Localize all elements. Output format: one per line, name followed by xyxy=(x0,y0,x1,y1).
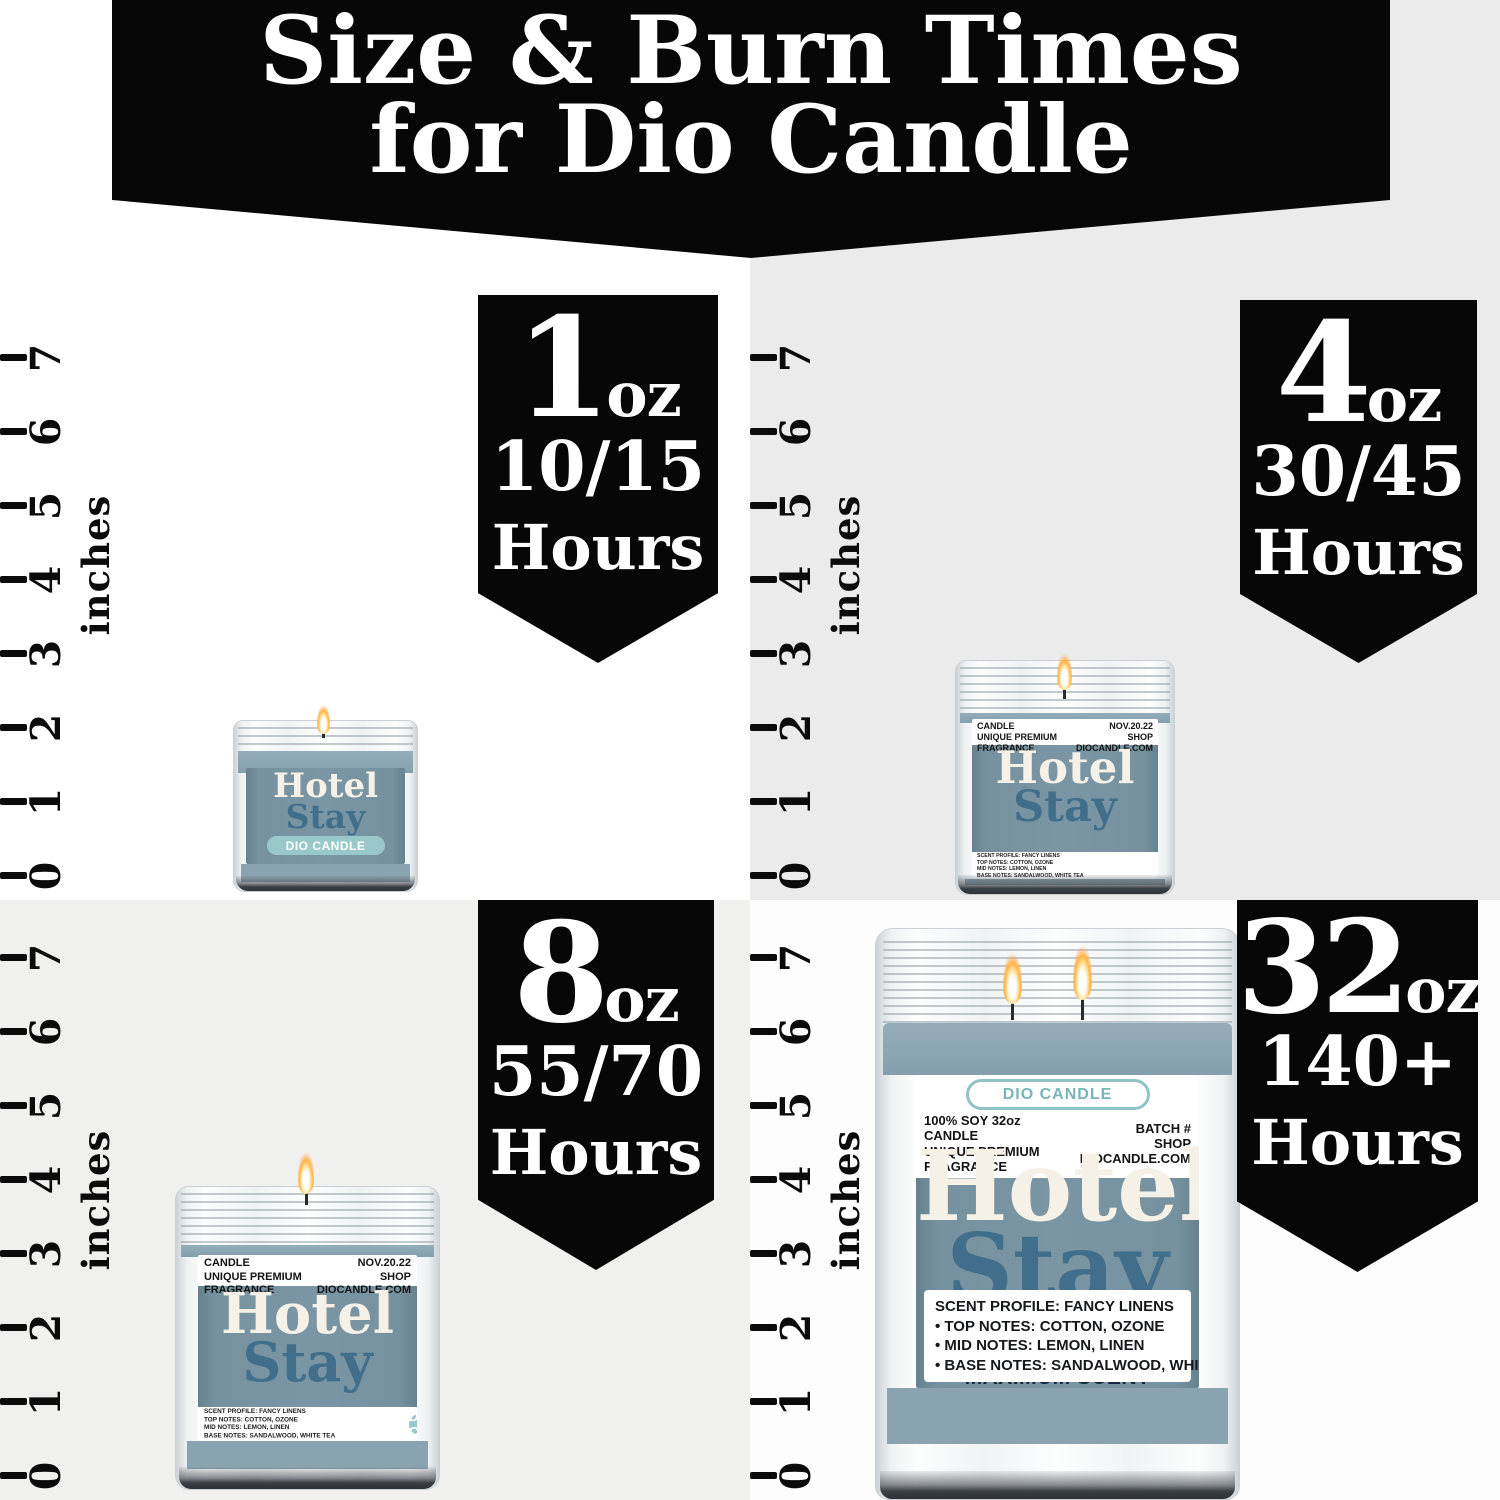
tick-number: 6 xyxy=(26,410,66,454)
ruler-tick-0: 0 xyxy=(0,856,92,896)
scent-notes-box: SCENT PROFILE: FANCY LINENS • TOP NOTES:… xyxy=(924,1290,1191,1382)
badge-size-unit: oz xyxy=(606,358,681,431)
tick-number: 4 xyxy=(26,1158,66,1202)
ruler-tick-4: 4 xyxy=(750,1160,842,1200)
ruler-tick-6: 6 xyxy=(0,412,92,452)
tick-number: 6 xyxy=(776,410,816,454)
ruler-8oz: inches 01234567 xyxy=(0,930,130,1500)
candle-4oz: 100% SOY 4oz CANDLE UNIQUE PREMIUM FRAGR… xyxy=(955,650,1175,895)
candle-label: 100% SOY 8oz CANDLE UNIQUE PREMIUM FRAGR… xyxy=(198,1255,417,1441)
badge-size: 1oz xyxy=(478,299,718,437)
ruler-tick-3: 3 xyxy=(750,634,842,674)
ruler-tick-2: 2 xyxy=(0,708,92,748)
tick-number: 4 xyxy=(776,1158,816,1202)
candle-32oz: DIO CANDLE 100% SOY 32oz CANDLE UNIQUE P… xyxy=(875,928,1240,1500)
brand-pill: DIO CANDLE xyxy=(966,1079,1150,1110)
badge-hours-label: Hours xyxy=(478,517,718,579)
jar-glass: Hotel Stay DIO CANDLE xyxy=(233,720,418,892)
label-name: Hotel Stay xyxy=(198,1288,417,1387)
badge-1oz: 1oz 10/15 Hours xyxy=(478,295,718,663)
ruler-tick-0: 0 xyxy=(750,856,842,896)
tick-number: 1 xyxy=(776,780,816,824)
badge-size-number: 32 xyxy=(1237,893,1405,1043)
badge-size-unit: oz xyxy=(604,963,679,1036)
ruler-tick-0: 0 xyxy=(750,1456,842,1496)
ruler-tick-5: 5 xyxy=(750,1086,842,1126)
tick-number: 7 xyxy=(776,336,816,380)
candle-8oz: 100% SOY 8oz CANDLE UNIQUE PREMIUM FRAGR… xyxy=(175,1148,440,1490)
candle-label: 100% SOY 4oz CANDLE UNIQUE PREMIUM FRAGR… xyxy=(972,719,1158,879)
ruler-tick-6: 6 xyxy=(750,412,842,452)
ruler-tick-6: 6 xyxy=(750,1012,842,1052)
tick-number: 7 xyxy=(26,336,66,380)
tick-number: 5 xyxy=(26,1084,66,1128)
ruler-tick-4: 4 xyxy=(750,560,842,600)
ruler-tick-4: 4 xyxy=(0,560,92,600)
tick-number: 4 xyxy=(26,558,66,602)
label-name-line2: Stay xyxy=(246,802,405,833)
ruler-tick-7: 7 xyxy=(750,338,842,378)
ruler-tick-5: 5 xyxy=(0,486,92,526)
badge-size-number: 4 xyxy=(1276,291,1367,454)
tick-number: 0 xyxy=(26,854,66,898)
badge-size: 8oz xyxy=(478,904,714,1042)
label-notes-strip: SCENT PROFILE: FANCY LINENS TOP NOTES: C… xyxy=(198,1407,417,1441)
label-name: Hotel Stay xyxy=(916,1141,1199,1311)
scent-notes: SCENT PROFILE: FANCY LINENS TOP NOTES: C… xyxy=(204,1408,335,1440)
jar-base xyxy=(880,1471,1236,1499)
tick-number: 2 xyxy=(776,1306,816,1350)
ruler-tick-3: 3 xyxy=(0,1234,92,1274)
tick-number: 3 xyxy=(26,632,66,676)
tick-number: 1 xyxy=(26,780,66,824)
ruler-tick-7: 7 xyxy=(0,938,92,978)
badge-8oz: 8oz 55/70 Hours xyxy=(478,900,714,1270)
candle-label: Hotel Stay DIO CANDLE xyxy=(246,768,405,864)
tick-number: 6 xyxy=(26,1010,66,1054)
tick-number: 2 xyxy=(26,1306,66,1350)
ruler-1oz: inches 01234567 xyxy=(0,330,130,900)
ruler-tick-0: 0 xyxy=(0,1456,92,1496)
ruler-tick-7: 7 xyxy=(750,938,842,978)
badge-burn-time: 10/15 xyxy=(478,433,718,501)
info-line: BATCH # NOV.20.22 xyxy=(317,1255,411,1271)
ruler-tick-1: 1 xyxy=(750,1382,842,1422)
tick-number: 3 xyxy=(26,1232,66,1276)
tick-number: 6 xyxy=(776,1010,816,1054)
brand-pill: DIO CANDLE xyxy=(409,1414,417,1435)
tick-number: 3 xyxy=(776,632,816,676)
ruler-tick-1: 1 xyxy=(0,782,92,822)
badge-hours-label: Hours xyxy=(1240,522,1477,584)
jar-base xyxy=(236,876,415,891)
tick-number: 0 xyxy=(776,854,816,898)
ruler-32oz: inches 01234567 xyxy=(750,930,880,1500)
tick-number: 7 xyxy=(776,936,816,980)
info-line: BATCH # NOV.20.22 xyxy=(1076,719,1153,732)
ruler-tick-2: 2 xyxy=(750,1308,842,1348)
title-line2: for Dio Candle xyxy=(369,94,1132,186)
wax-top xyxy=(883,1023,1232,1075)
infographic-canvas: Size & Burn Times for Dio Candle inches … xyxy=(0,0,1500,1500)
tick-number: 2 xyxy=(776,706,816,750)
info-line: 100% SOY 4oz CANDLE xyxy=(977,719,1076,732)
ruler-4oz: inches 01234567 xyxy=(750,330,880,900)
badge-4oz: 4oz 30/45 Hours xyxy=(1240,300,1477,663)
badge-size: 4oz xyxy=(1240,304,1477,442)
tick-number: 1 xyxy=(776,1380,816,1424)
badge-burn-time: 30/45 xyxy=(1240,438,1477,506)
brand-pill: DIO CANDLE xyxy=(267,836,385,855)
info-line: 100% SOY 8oz CANDLE xyxy=(204,1255,317,1271)
badge-burn-time: 55/70 xyxy=(478,1038,714,1106)
badge-hours-label: Hours xyxy=(478,1122,714,1184)
jar-threads xyxy=(883,935,1232,1023)
jar-glass: DIO CANDLE 100% SOY 32oz CANDLE UNIQUE P… xyxy=(875,928,1240,1500)
ruler-tick-6: 6 xyxy=(0,1012,92,1052)
tick-number: 4 xyxy=(776,558,816,602)
tick-number: 5 xyxy=(776,1084,816,1128)
badge-32oz: 32oz 140+ Hours xyxy=(1237,900,1478,1272)
tick-number: 0 xyxy=(776,1454,816,1498)
flame-icon xyxy=(317,702,330,734)
ruler-tick-7: 7 xyxy=(0,338,92,378)
ruler-tick-5: 5 xyxy=(0,1086,92,1126)
badge-size-number: 1 xyxy=(515,286,606,449)
flame-icon xyxy=(298,1148,314,1194)
ruler-tick-5: 5 xyxy=(750,486,842,526)
ruler-tick-4: 4 xyxy=(0,1160,92,1200)
label-name: Hotel Stay xyxy=(972,747,1158,827)
ruler-tick-3: 3 xyxy=(750,1234,842,1274)
ruler-tick-2: 2 xyxy=(750,708,842,748)
badge-size-number: 8 xyxy=(513,891,604,1054)
flame-icon xyxy=(1057,650,1072,690)
ruler-tick-3: 3 xyxy=(0,634,92,674)
badge-hours-label: Hours xyxy=(1237,1112,1478,1174)
badge-size: 32oz xyxy=(1237,904,1478,1032)
ruler-tick-1: 1 xyxy=(0,1382,92,1422)
tick-number: 5 xyxy=(26,484,66,528)
wax-bottom xyxy=(887,1388,1228,1444)
badge-burn-time: 140+ xyxy=(1237,1028,1478,1096)
tick-number: 5 xyxy=(776,484,816,528)
jar-base xyxy=(958,875,1172,894)
badge-size-unit: oz xyxy=(1405,954,1480,1027)
candle-1oz: Hotel Stay DIO CANDLE xyxy=(233,700,418,892)
tick-number: 3 xyxy=(776,1232,816,1276)
jar-glass: 100% SOY 8oz CANDLE UNIQUE PREMIUM FRAGR… xyxy=(175,1186,440,1490)
tick-number: 0 xyxy=(26,1454,66,1498)
tick-number: 1 xyxy=(26,1380,66,1424)
jar-base xyxy=(179,1467,437,1489)
tick-number: 2 xyxy=(26,706,66,750)
wax-bottom xyxy=(187,1441,429,1469)
ruler-tick-1: 1 xyxy=(750,782,842,822)
badge-size-unit: oz xyxy=(1367,363,1442,436)
ruler-tick-2: 2 xyxy=(0,1308,92,1348)
candle-label: DIO CANDLE 100% SOY 32oz CANDLE UNIQUE P… xyxy=(916,1075,1199,1388)
tick-number: 7 xyxy=(26,936,66,980)
